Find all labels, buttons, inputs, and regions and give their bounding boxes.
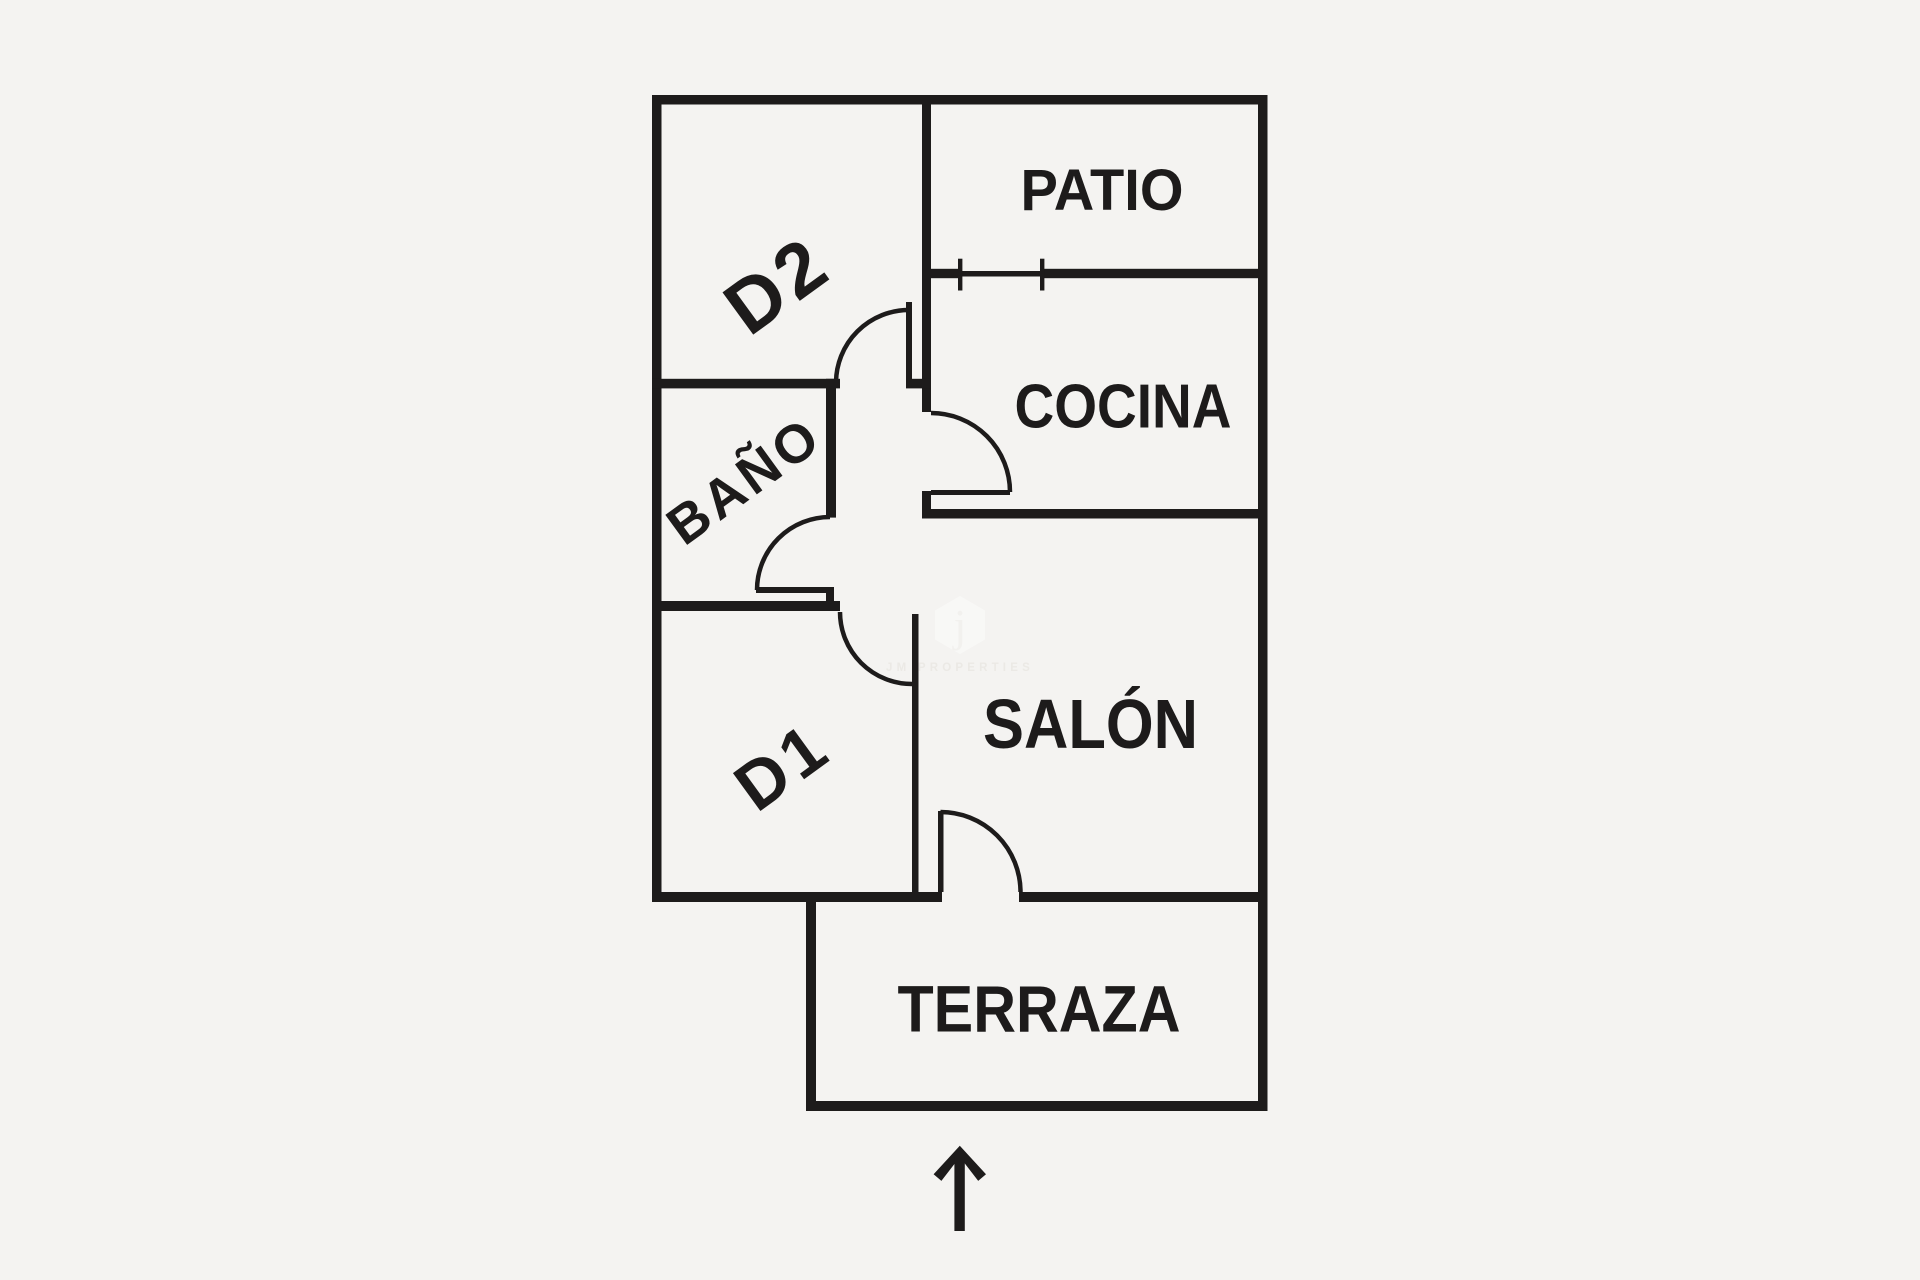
svg-text:JM PROPERTIES: JM PROPERTIES — [886, 662, 1034, 674]
svg-text:PATIO: PATIO — [1021, 158, 1184, 223]
svg-text:TERRAZA: TERRAZA — [898, 972, 1181, 1045]
svg-text:SALÓN: SALÓN — [983, 685, 1198, 763]
svg-text:j: j — [952, 600, 967, 651]
svg-text:COCINA: COCINA — [1015, 372, 1232, 442]
